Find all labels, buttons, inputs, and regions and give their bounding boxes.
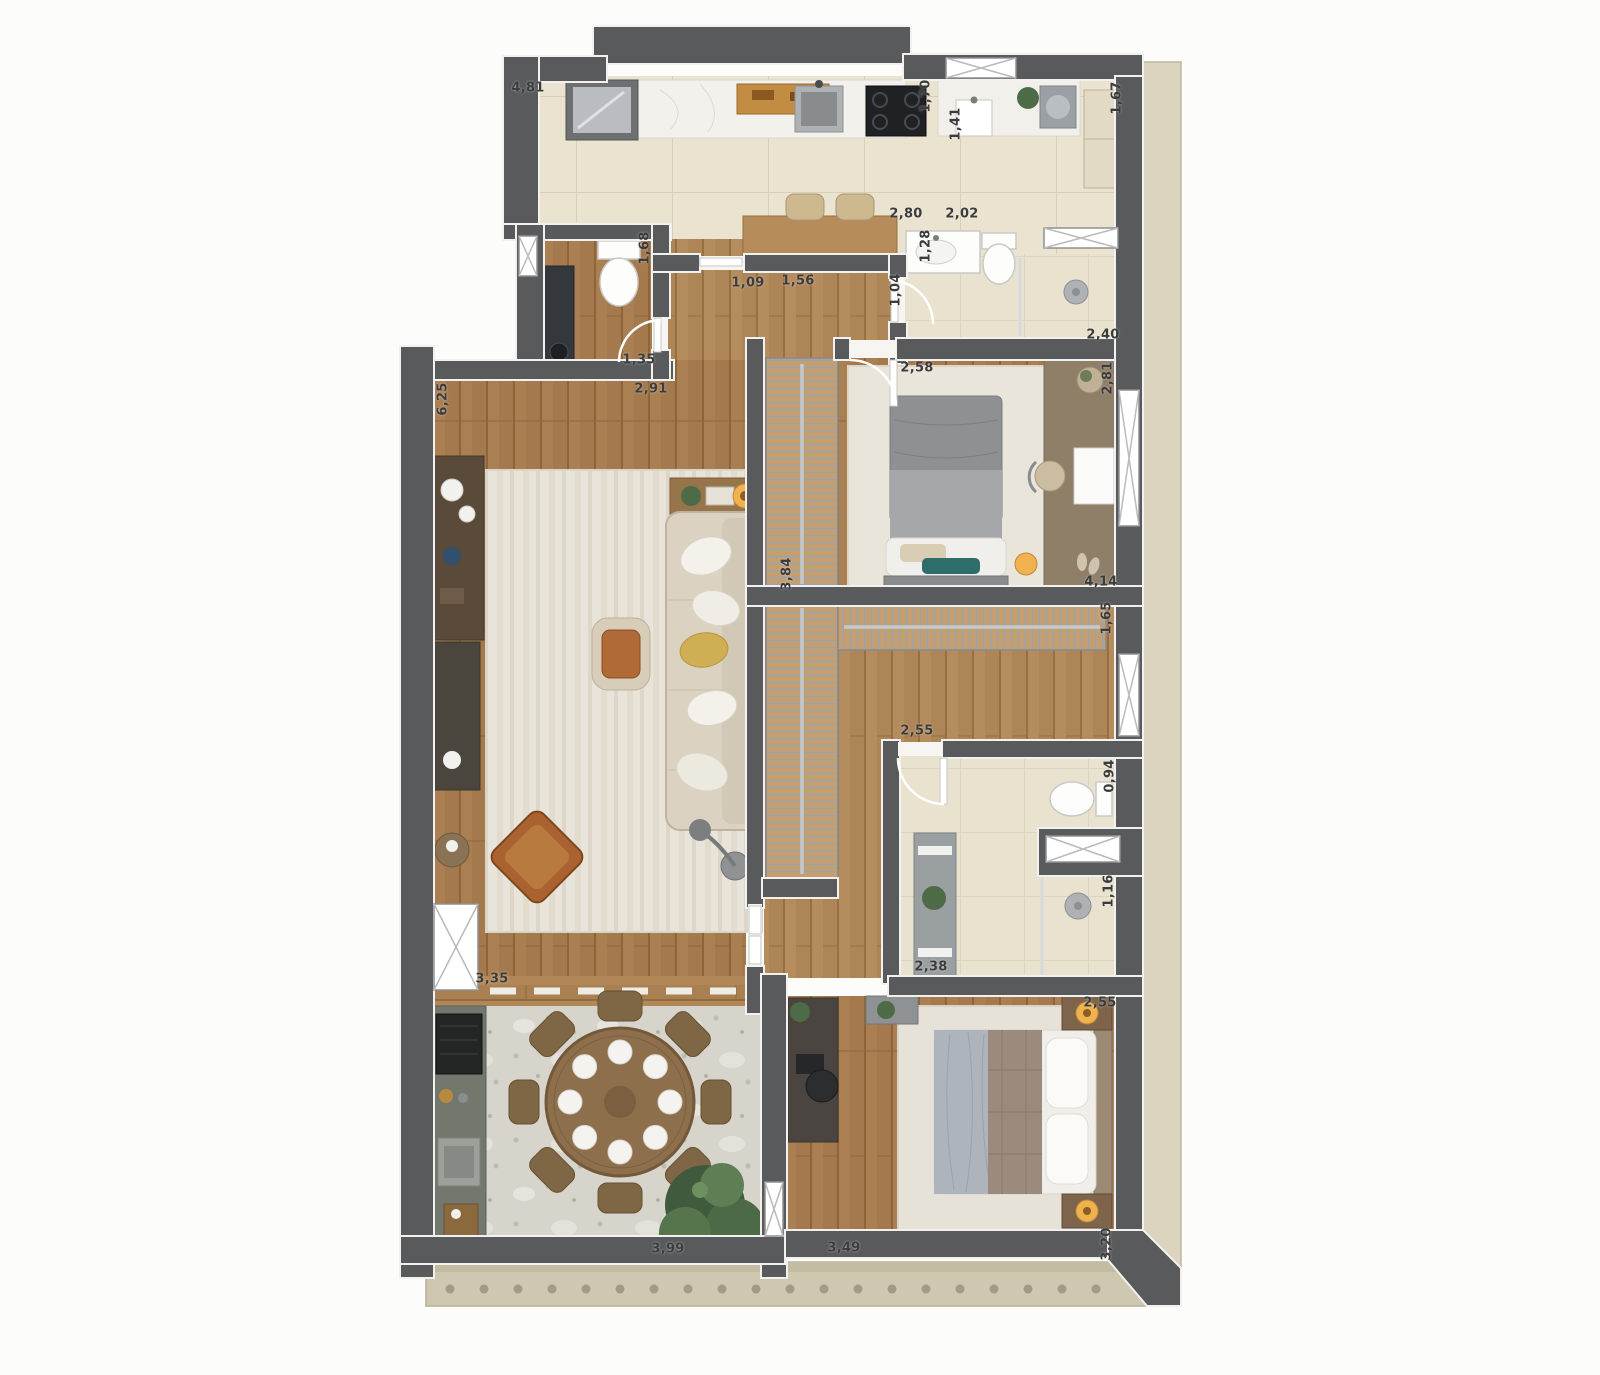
desk-chair [806,1070,838,1102]
door-leaf [654,318,661,352]
wardrobe-rack-2 [766,602,838,880]
wall-master-top [888,976,1143,996]
floor-plan-page: 4,811,701,411,672,802,021,281,681,091,56… [0,0,1600,1375]
door-leaf [891,280,898,322]
faucet-icon [933,235,939,241]
laundry-sink [956,100,992,136]
towel [918,846,952,855]
utensil-icon [458,1093,468,1103]
toilet-fixture [600,258,638,306]
window-service-bath [1044,228,1118,248]
cooktop [866,86,926,136]
sliding-door-leaf [749,936,761,964]
desk-stool [1035,461,1065,491]
window-bedroom1 [1119,390,1139,526]
tray [444,1204,478,1236]
wall-top [593,26,911,64]
wall-bath-left [882,740,900,984]
tray [706,487,734,505]
window-closet [1119,654,1139,736]
plant-icon [1017,87,1039,109]
toilet-tank [598,241,640,259]
bottle-icon [451,1209,461,1219]
exterior-band-right [1143,62,1181,1270]
pillow-teal [922,558,980,574]
wall-hall-service-a [889,254,907,278]
wall-kitchen-hall-b [744,254,907,272]
plant-icon [922,886,946,910]
utensil-icon [439,1089,453,1103]
wall-mid [746,586,1143,606]
floor-plan [0,0,1600,1375]
shower-head-icon [550,343,568,361]
wardrobe-rack-1 [766,358,838,590]
door-gap [850,340,896,358]
wall-kitchen-hall-a [652,254,700,272]
wall-bedroom1-top-b [896,338,1143,360]
grill [436,1014,482,1074]
window-top [946,58,1016,78]
bedroom-1 [848,360,1115,590]
window-wc [519,236,537,276]
pouf-tray [602,630,640,678]
sliding-door-leaf [749,906,761,934]
window-living [434,904,478,990]
stool [786,194,824,220]
pillow [1046,1114,1088,1184]
door-gap [898,742,942,756]
vase-icon [446,840,458,852]
toilet-tank [1096,782,1112,816]
plant-icon [790,1002,810,1022]
faucet-icon [815,80,823,88]
door-leaf [940,758,947,804]
bowl-icon [441,479,463,501]
sink-basin [801,92,837,126]
wall-top-right [903,54,1143,80]
centerpiece [604,1086,636,1118]
wall-terrace-bottom [400,1236,785,1264]
washer-door [1046,95,1070,119]
plant-icon [681,486,701,506]
wall-kitchen-left [503,56,539,236]
wall-wc-right-stub [652,350,670,380]
door-leaf [700,258,742,266]
toilet-fixture [1050,782,1094,816]
decor-box [440,588,464,604]
drain-center [1074,902,1082,910]
decor-roll [443,751,461,769]
wall-bath-top-b [942,740,1143,758]
faucet-icon [971,97,978,104]
blue-vase-icon [443,547,461,565]
basin-icon [916,240,956,264]
headboard [1094,1028,1112,1196]
window-master-bath [1046,836,1120,862]
wall-living-right [746,338,764,908]
toilet-fixture [983,244,1015,284]
lamp-center [1083,1207,1091,1215]
sink-basin [444,1146,474,1178]
wall-left-main [400,346,434,1278]
single-bed-duvet [890,470,1002,540]
plant-icon [1080,370,1092,382]
desk [1074,448,1114,504]
towel [918,948,952,957]
wall-closet-stub [762,878,838,898]
bread [752,90,774,100]
slipper [1077,553,1087,571]
wall-master-bottom [785,1230,1115,1258]
window-master-bedroom [765,1182,783,1236]
wall-bedroom1-top-a [834,338,850,360]
pillow [1046,1038,1088,1108]
bowl-icon [459,506,475,522]
floor-lamp-shade-icon [689,819,711,841]
floor-lamp-icon [1015,553,1037,575]
stool [836,194,874,220]
lamp-center [1083,1009,1091,1017]
drain-center [1072,288,1080,296]
wall-wc-bottom [400,360,674,380]
wardrobe-rack-3 [838,604,1106,650]
plant-icon [877,1001,895,1019]
